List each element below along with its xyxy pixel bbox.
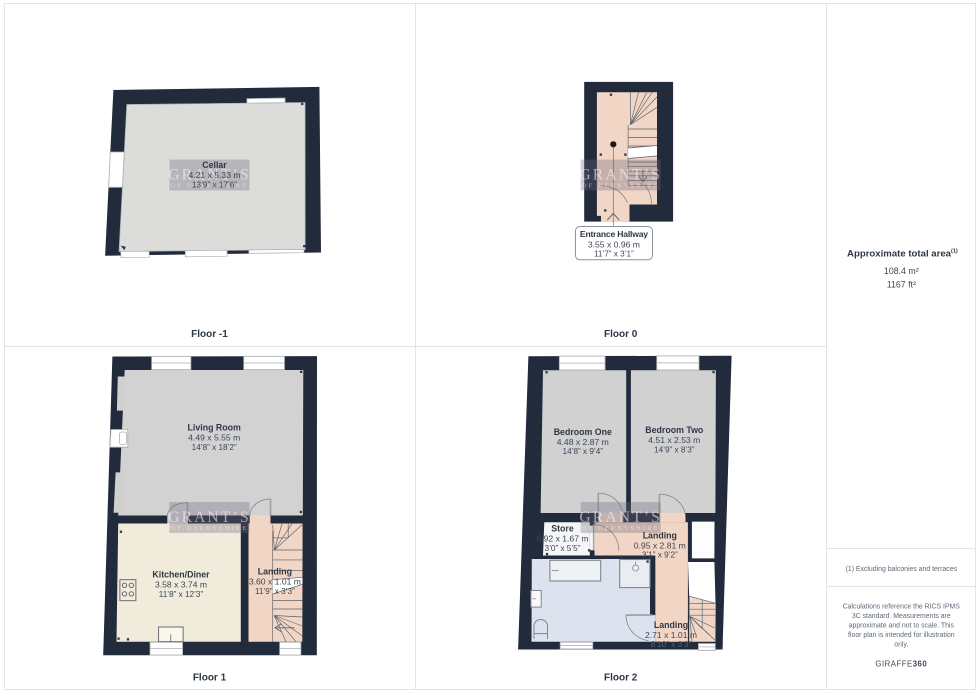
- svg-text:approximate and not to scale.: approximate and not to scale. This: [849, 623, 955, 630]
- svg-text:Store: Store: [551, 524, 574, 534]
- svg-text:1167 ft²: 1167 ft²: [887, 279, 916, 289]
- svg-text:only.: only.: [894, 642, 908, 649]
- svg-text:Floor 0: Floor 0: [604, 329, 638, 340]
- svg-text:Bedroom Two: Bedroom Two: [645, 425, 704, 435]
- svg-text:GIRAFFE360: GIRAFFE360: [875, 660, 927, 669]
- svg-text:Landing: Landing: [654, 620, 688, 630]
- svg-text:0.95 x 2.81 m: 0.95 x 2.81 m: [634, 540, 686, 550]
- svg-text:3’0” x 5’5”: 3’0” x 5’5”: [545, 544, 581, 553]
- svg-text:4.49 x 5.55 m: 4.49 x 5.55 m: [188, 433, 240, 443]
- svg-text:11’7” x 3’1”: 11’7” x 3’1”: [594, 250, 634, 259]
- svg-text:4.51 x 2.53 m: 4.51 x 2.53 m: [648, 435, 700, 445]
- svg-text:11’9” x 3’3”: 11’9” x 3’3”: [255, 587, 295, 596]
- svg-text:8’10” x 3’3”: 8’10” x 3’3”: [651, 640, 692, 649]
- svg-text:Floor -1: Floor -1: [191, 329, 228, 340]
- svg-text:GRANT’S: GRANT’S: [168, 509, 251, 526]
- svg-text:OF DERBYSHIRE: OF DERBYSHIRE: [582, 182, 660, 189]
- svg-text:4.21 x 5.33 m: 4.21 x 5.33 m: [188, 170, 240, 180]
- svg-text:Entrance Hallway: Entrance Hallway: [580, 229, 648, 239]
- svg-text:GRANT’S: GRANT’S: [579, 166, 662, 183]
- svg-text:Approximate total area(1): Approximate total area(1): [847, 249, 958, 260]
- svg-text:Cellar: Cellar: [202, 160, 227, 170]
- svg-text:Calculations reference the RIC: Calculations reference the RICS IPMS: [843, 604, 961, 611]
- svg-text:3.55 x 0.96 m: 3.55 x 0.96 m: [588, 240, 640, 250]
- svg-text:11’8” x 12’3”: 11’8” x 12’3”: [159, 590, 204, 599]
- svg-text:Landing: Landing: [258, 567, 292, 577]
- svg-text:14’9” x 8’3”: 14’9” x 8’3”: [654, 446, 695, 455]
- svg-text:Living Room: Living Room: [188, 423, 241, 433]
- svg-text:4.48 x 2.87 m: 4.48 x 2.87 m: [557, 437, 609, 447]
- svg-text:3C standard. Measurements are: 3C standard. Measurements are: [852, 613, 951, 620]
- svg-text:Kitchen/Diner: Kitchen/Diner: [152, 570, 210, 580]
- svg-text:14’8” x 18’2”: 14’8” x 18’2”: [192, 443, 237, 452]
- svg-text:2.71 x 1.01 m: 2.71 x 1.01 m: [645, 630, 697, 640]
- svg-text:Landing: Landing: [643, 530, 677, 540]
- svg-text:OF DERBYSHIRE: OF DERBYSHIRE: [171, 525, 249, 532]
- svg-text:3’1” x 9’2”: 3’1” x 9’2”: [642, 551, 678, 560]
- svg-text:14’8” x 9’4”: 14’8” x 9’4”: [563, 447, 604, 456]
- svg-text:floor plan is intended for ill: floor plan is intended for illustration: [848, 632, 955, 639]
- svg-text:3.58 x 3.74 m: 3.58 x 3.74 m: [155, 580, 207, 590]
- svg-text:13’9” x 17’6”: 13’9” x 17’6”: [192, 181, 237, 190]
- svg-text:Floor 2: Floor 2: [604, 672, 638, 683]
- svg-text:(1) Excluding balconies and te: (1) Excluding balconies and terraces: [846, 566, 958, 573]
- svg-text:3.60 x 1.01 m: 3.60 x 1.01 m: [249, 577, 301, 587]
- svg-text:108.4 m²: 108.4 m²: [884, 266, 919, 276]
- svg-text:Bedroom One: Bedroom One: [554, 427, 612, 437]
- svg-text:0.92 x 1.67 m: 0.92 x 1.67 m: [536, 534, 588, 544]
- svg-text:GRANT’S: GRANT’S: [579, 509, 662, 526]
- svg-text:Floor 1: Floor 1: [193, 672, 227, 683]
